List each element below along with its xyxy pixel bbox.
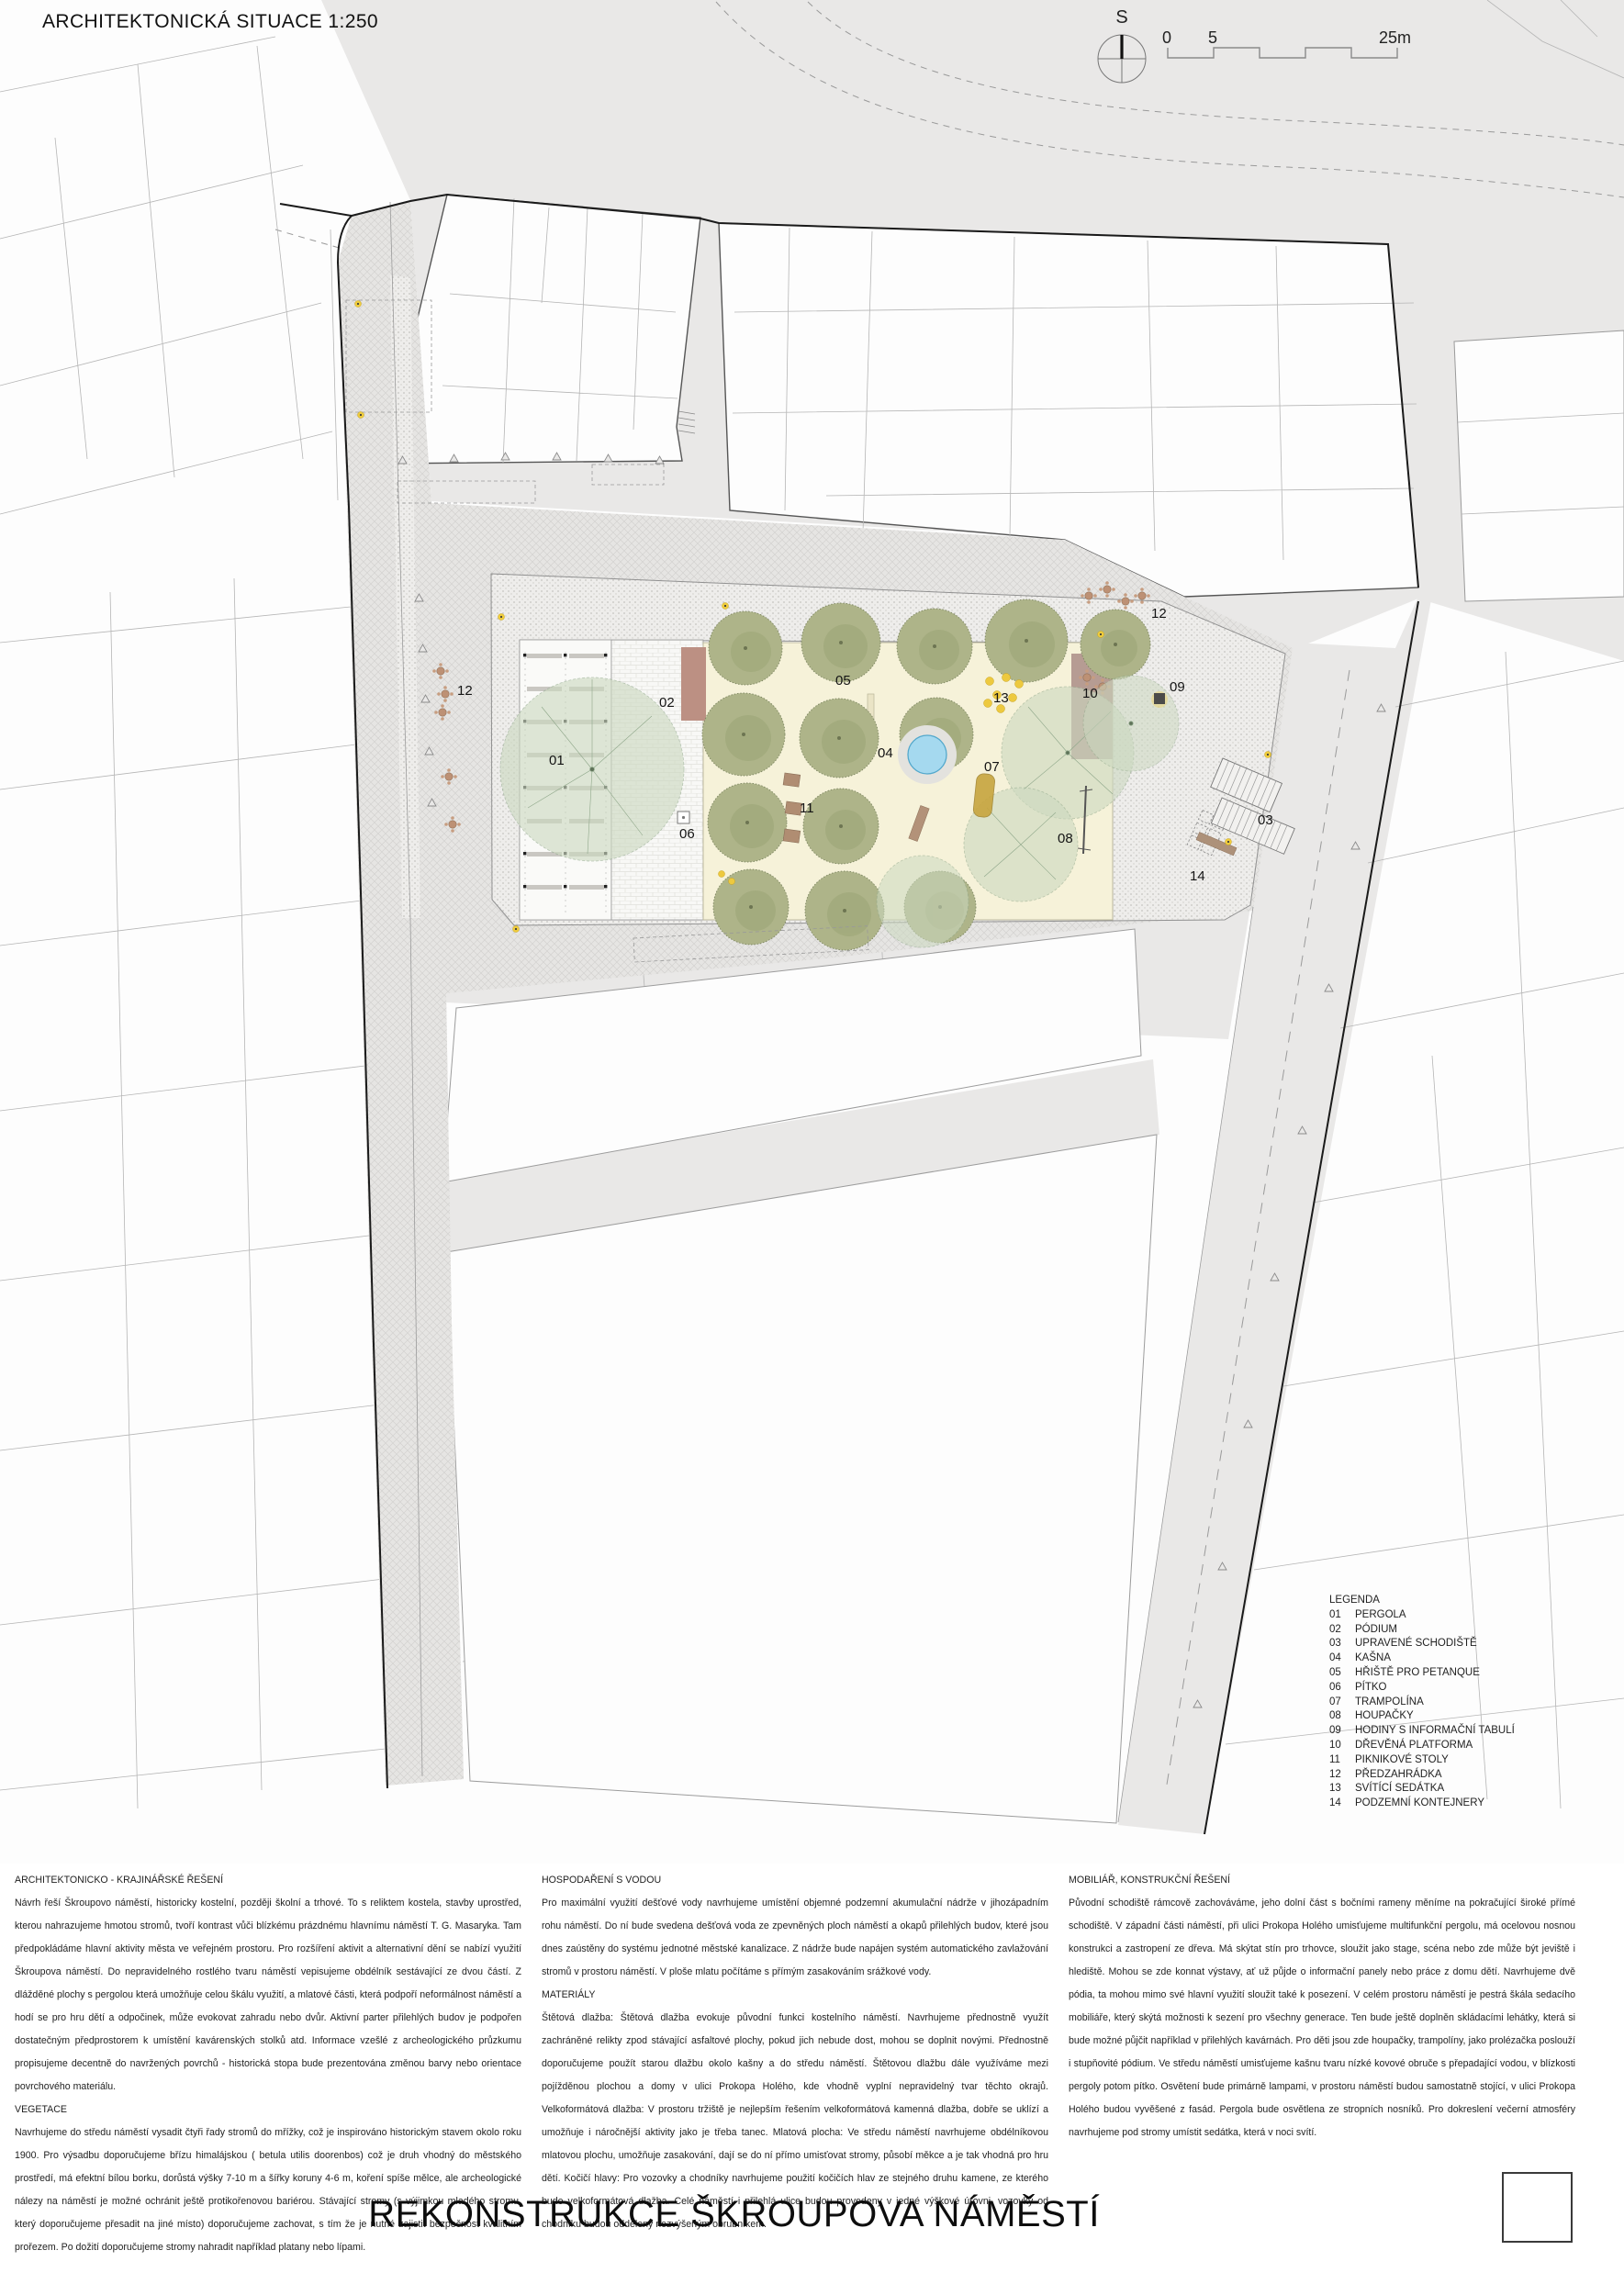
legend-title: LEGENDA <box>1329 1594 1380 1608</box>
plan-title: ARCHITEKTONICKÁ SITUACE 1:250 <box>42 11 378 33</box>
legend-item: 13SVÍTÍCÍ SEDÁTKA <box>1329 1782 1515 1797</box>
title-block-box <box>1502 2172 1573 2243</box>
north-label: S <box>1108 7 1136 28</box>
marker-12-east: 12 <box>1151 606 1167 621</box>
legend-item: 01PERGOLA <box>1329 1608 1515 1623</box>
clock-09 <box>1154 693 1165 704</box>
legend-item: 04KAŠNA <box>1329 1651 1515 1666</box>
legend-item: 07TRAMPOLÍNA <box>1329 1696 1515 1710</box>
marker-09: 09 <box>1170 679 1185 695</box>
drawing-sheet: ARCHITEKTONICKÁ SITUACE 1:250 S 0 5 25m … <box>0 0 1624 2295</box>
marker-10: 10 <box>1082 686 1098 701</box>
column-subheading: MATERIÁLY <box>542 1984 1048 2007</box>
marker-06: 06 <box>679 826 695 842</box>
marker-08: 08 <box>1058 831 1073 846</box>
legend-item: 14PODZEMNÍ KONTEJNERY <box>1329 1797 1515 1811</box>
column-heading: ARCHITEKTONICKO - KRAJINÁŘSKÉ ŘEŠENÍ <box>15 1869 521 1892</box>
legend-title-row: LEGENDA <box>1329 1594 1515 1608</box>
column-body: Původní schodiště rámcově zachováváme, j… <box>1069 1892 1575 2144</box>
site-plan-canvas <box>0 0 1624 1864</box>
scale-zero: 0 <box>1162 28 1171 48</box>
marker-07: 07 <box>984 759 1000 775</box>
scale-bar <box>1161 41 1409 65</box>
column-subheading: VEGETACE <box>15 2099 521 2121</box>
marker-11: 11 <box>800 800 814 816</box>
legend-item: 12PŘEDZAHRÁDKA <box>1329 1768 1515 1783</box>
legend-item: 03UPRAVENÉ SCHODIŠTĚ <box>1329 1637 1515 1651</box>
marker-01: 01 <box>549 753 565 768</box>
marker-05: 05 <box>835 673 851 688</box>
marker-14: 14 <box>1190 868 1205 884</box>
building-block-right <box>1454 330 1624 601</box>
legend-item: 02PÓDIUM <box>1329 1623 1515 1638</box>
legend-item: 06PÍTKO <box>1329 1681 1515 1696</box>
legend-item: 10DŘEVĚNÁ PLATFORMA <box>1329 1739 1515 1753</box>
column-body: Pro maximální využití dešťové vody navrh… <box>542 1892 1048 1984</box>
podium-02 <box>681 647 706 721</box>
fountain-04 <box>908 735 946 774</box>
column-heading: HOSPODAŘENÍ S VODOU <box>542 1869 1048 1892</box>
building-block-south <box>442 929 1157 1823</box>
legend-item: 08HOUPAČKY <box>1329 1709 1515 1724</box>
marker-03: 03 <box>1258 812 1273 828</box>
column-body: Návrh řeší Škroupovo náměstí, historicky… <box>15 1892 521 2099</box>
legend-item: 05HŘIŠTĚ PRO PETANQUE <box>1329 1666 1515 1681</box>
marker-12-west: 12 <box>457 683 473 699</box>
legend: LEGENDA 01PERGOLA 02PÓDIUM 03UPRAVENÉ SC… <box>1329 1594 1515 1811</box>
marker-04: 04 <box>878 745 893 761</box>
scale-five: 5 <box>1208 28 1217 48</box>
site-plan: ARCHITEKTONICKÁ SITUACE 1:250 S 0 5 25m … <box>0 0 1624 1873</box>
marker-02: 02 <box>659 695 675 711</box>
column-body: Navrhujeme do středu náměstí vysadit čty… <box>15 2121 521 2259</box>
sheet-title: REKONSTRUKCE ŠKROUPOVA NÁMĚSTÍ <box>0 2194 1468 2235</box>
north-arrow <box>1092 26 1153 90</box>
legend-item: 09HODINY S INFORMAČNÍ TABULÍ <box>1329 1724 1515 1739</box>
column-heading: MOBILIÁŘ, KONSTRUKČNÍ ŘEŠENÍ <box>1069 1869 1575 1892</box>
legend-item: 11PIKNIKOVÉ STOLY <box>1329 1753 1515 1768</box>
scale-max: 25m <box>1379 28 1411 48</box>
marker-13: 13 <box>993 690 1009 706</box>
